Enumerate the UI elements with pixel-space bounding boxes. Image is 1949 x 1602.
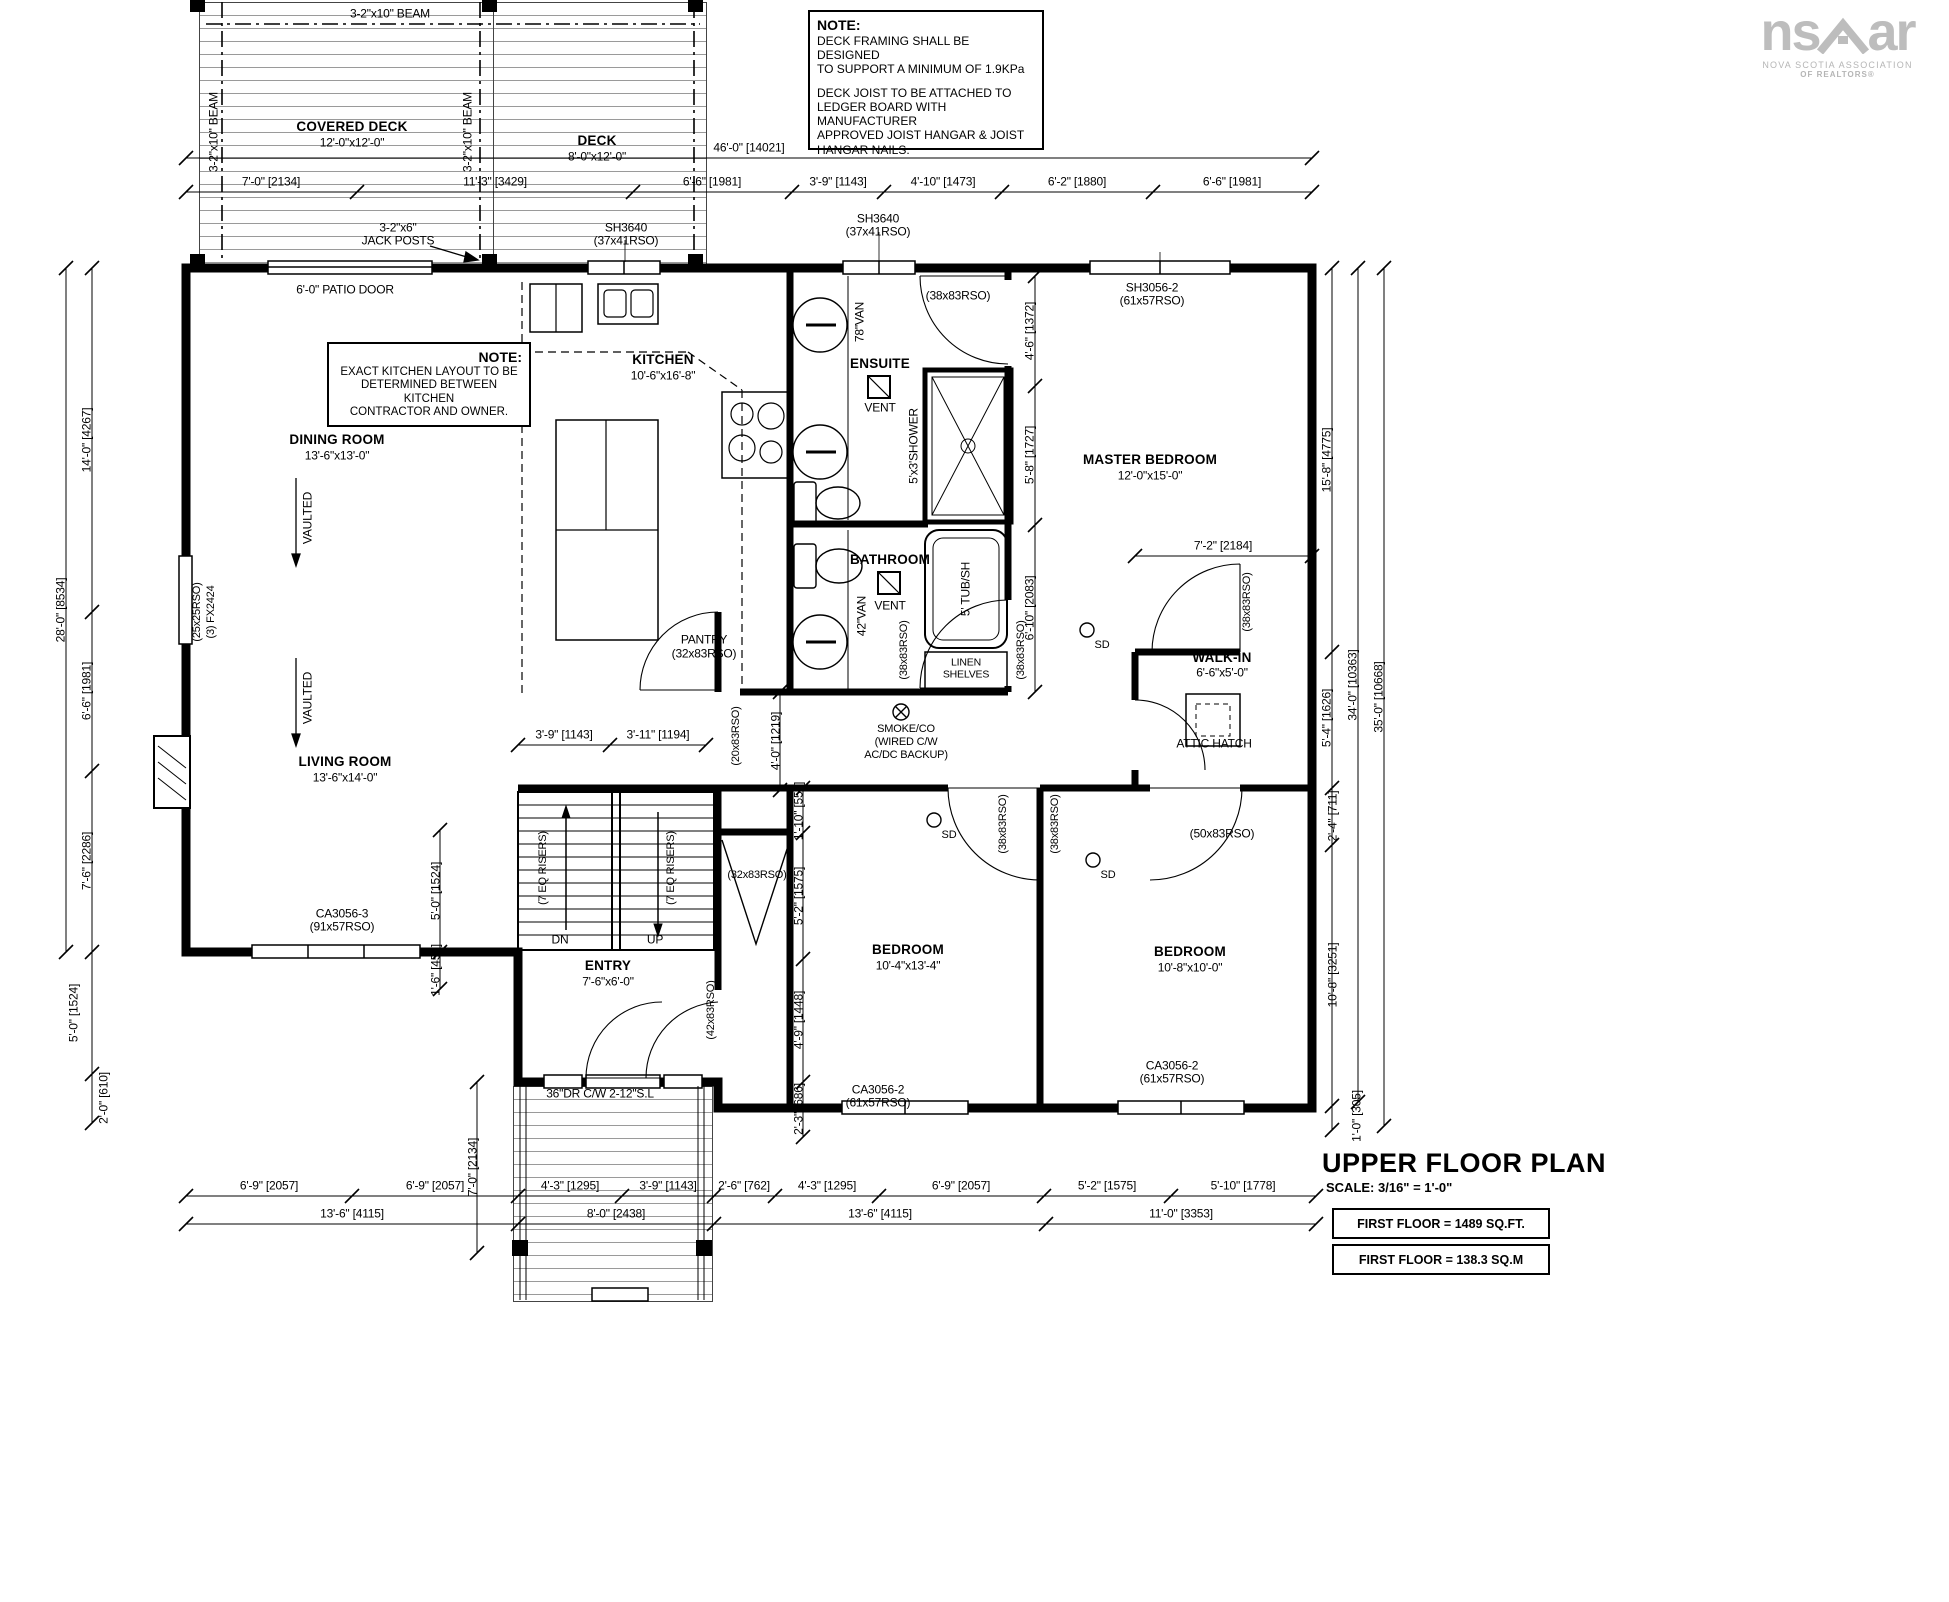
dim-bottom-total-1: 8'-0" [2438] <box>587 1208 645 1221</box>
dim-top-1: 11'-3" [3429] <box>463 176 527 189</box>
kitchen-note-line: CONTRACTOR AND OWNER. <box>336 406 522 420</box>
dim-bottom-total-0: 13'-6" [4115] <box>320 1208 384 1221</box>
smoke-co-label-1: SMOKE/CO <box>877 724 935 736</box>
entry-door-rso: (42x83RSO) <box>706 980 718 1039</box>
dim-inner-2: 6'-10" [2083] <box>1024 576 1037 641</box>
room-covered-deck-size: 12'-0"x12'-0" <box>320 137 385 150</box>
room-kitchen: KITCHEN <box>632 353 693 367</box>
bedroom1-door-rso-a: (38x83RSO) <box>998 794 1010 853</box>
shower-label: 5'x3'SHOWER <box>908 408 921 484</box>
room-bedroom1: BEDROOM <box>872 943 944 957</box>
patio-door-label: 6'-0" PATIO DOOR <box>296 284 394 297</box>
dim-left-4: 5'-0" [1524] <box>68 984 81 1042</box>
deck-note-title: NOTE: <box>817 17 1035 34</box>
kitchen-casework <box>522 282 790 698</box>
area-sqft-box: FIRST FLOOR = 1489 SQ.FT. <box>1332 1208 1550 1239</box>
dim-bottom-6: 6'-9" [2057] <box>932 1180 990 1193</box>
dim-inner-6: 4'-0" [1219] <box>770 712 783 770</box>
stairs-up-label: UP <box>647 934 663 947</box>
room-bedroom1-size: 10'-4"x13'-4" <box>876 960 941 973</box>
house-roof-icon <box>1817 14 1869 54</box>
window-tag-sh3640-2: SH3640 <box>857 213 899 226</box>
kitchen-note-line: DETERMINED BETWEEN KITCHEN <box>336 379 522 406</box>
dim-bottom-total-3: 11'-0" [3353] <box>1149 1208 1213 1221</box>
dim-inner-8: 5'-2" [1575] <box>793 867 806 925</box>
attic-hatch-label: ATTIC HATCH <box>1176 738 1251 751</box>
dim-right-2: 34'-0" [10363] <box>1347 649 1360 720</box>
ensuite-door-rso: (38x83RSO) <box>926 290 991 303</box>
dim-inner-12: 2'-3" [686] <box>793 1083 806 1135</box>
dim-inner-1: 5'-8" [1727] <box>1024 426 1037 484</box>
front-door <box>586 1002 662 1078</box>
dim-inner-10: 1'-6" [457] <box>430 944 443 996</box>
dim-right-4: 2'-4" [711] <box>1327 791 1340 842</box>
porch-rails <box>520 1086 704 1300</box>
deck-note-line: LEDGER BOARD WITH MANUFACTURER <box>817 100 1035 128</box>
room-pantry: PANTRY <box>681 634 727 647</box>
area-sqft-label: FIRST FLOOR = 1489 SQ.FT. <box>1357 1217 1525 1231</box>
room-dining: DINING ROOM <box>289 433 384 447</box>
stairs-risers-2: (7 EQ RISERS) <box>666 831 678 905</box>
room-deck: DECK <box>577 134 616 148</box>
door-swings <box>586 276 1242 1078</box>
sd-label-1: SD <box>1095 640 1110 652</box>
upper-floor-plan-sheet: 3-2"x10" BEAM 3-2"x10" BEAM 3-2"x10" BEA… <box>0 0 1949 1602</box>
tub-label: 5' TUB/SH <box>960 562 973 616</box>
kitchen-note-line: EXACT KITCHEN LAYOUT TO BE <box>336 366 522 380</box>
sd-label-3: SD <box>1101 870 1116 882</box>
window-tag-ca3056-2a-rso: (61x57RSO) <box>846 1097 911 1110</box>
dim-inner-0: 4'-6" [1372] <box>1024 302 1037 360</box>
sd-symbol-2 <box>927 813 941 827</box>
window-fx2424 <box>179 556 192 644</box>
room-walkin: WALK-IN <box>1192 651 1251 665</box>
dim-top-3: 3'-9" [1143] <box>809 176 866 189</box>
window-tag-ca3056-3: CA3056-3 <box>316 908 368 921</box>
dim-bottom-7: 5'-2" [1575] <box>1078 1180 1136 1193</box>
entry-sidelite-right <box>664 1075 702 1088</box>
beam-label-left: 3-2"x10" BEAM <box>208 92 221 172</box>
vanity-78-label: 78"VAN <box>854 302 867 342</box>
stairs-risers-1: (7 EQ RISERS) <box>538 831 550 905</box>
dim-left-1: 28'-0" [8534] <box>55 578 68 643</box>
vaulted-arrows <box>292 246 478 746</box>
dim-overall-top: 46'-0" [14021] <box>713 142 784 155</box>
dim-bottom-1: 6'-9" [2057] <box>406 1180 464 1193</box>
dim-bottom-8: 5'-10" [1778] <box>1211 1180 1276 1193</box>
room-living: LIVING ROOM <box>299 755 392 769</box>
bathroom-toilet-tank <box>794 544 816 588</box>
dim-inner-5: 3'-11" [1194] <box>627 729 690 742</box>
front-door-spec: 36"DR C/W 2-12"S.L <box>546 1088 654 1101</box>
sheet-scale: SCALE: 3/16" = 1'-0" <box>1326 1180 1452 1195</box>
dim-inner-11: 4'-9" [1448] <box>793 991 806 1049</box>
beam-label-mid: 3-2"x10" BEAM <box>462 92 475 172</box>
jack-posts-label-1: 3-2"x6" <box>379 222 416 235</box>
dim-right-3: 35'-0" [10668] <box>1373 661 1386 732</box>
room-entry: ENTRY <box>585 959 631 973</box>
room-pantry-rso: (32x83RSO) <box>672 648 737 661</box>
jack-posts-label-2: JACK POSTS <box>362 235 435 248</box>
dim-right-6: 1'-0" [305] <box>1351 1090 1364 1142</box>
window-tag-sh3640-1-rso: (37x41RSO) <box>594 235 659 248</box>
window-tag-ca3056-2a: CA3056-2 <box>852 1084 904 1097</box>
deck-note-line: DECK FRAMING SHALL BE DESIGNED <box>817 34 1035 62</box>
porch-step-base <box>592 1288 648 1301</box>
dim-inner-4: 3'-9" [1143] <box>535 729 592 742</box>
bedroom1-door <box>948 788 1040 880</box>
linen-label-1: LINEN <box>951 657 981 668</box>
window-tag-sh3056-rso: (61x57RSO) <box>1120 295 1185 308</box>
room-bedroom2-size: 10'-8"x10'-0" <box>1158 962 1223 975</box>
smoke-co-label-3: AC/DC BACKUP) <box>864 750 948 762</box>
dim-top-5: 6'-2" [1880] <box>1048 176 1106 189</box>
dim-bottom-0: 6'-9" [2057] <box>240 1180 298 1193</box>
deck-note-line: HANGAR NAILS. <box>817 143 1035 157</box>
dim-left-2: 6'-6" [1981] <box>81 662 94 720</box>
interior-walls <box>518 272 1312 1108</box>
room-master: MASTER BEDROOM <box>1083 453 1217 467</box>
sheet-title: UPPER FLOOR PLAN <box>1322 1148 1606 1179</box>
sd-symbol-1 <box>1080 623 1094 637</box>
deck-note-line: TO SUPPORT A MINIMUM OF 1.9KPa <box>817 62 1035 76</box>
room-walkin-size: 6'-6"x5'-0" <box>1196 667 1248 680</box>
closet-door-rso: (32x83RSO) <box>727 870 786 882</box>
nsar-logo-ns: ns <box>1760 10 1819 56</box>
dim-inner-3: 7'-2" [2184] <box>1194 540 1252 553</box>
deck-framing-note: NOTE: DECK FRAMING SHALL BE DESIGNED TO … <box>808 10 1044 150</box>
beam-label-top: 3-2"x10" BEAM <box>350 8 430 21</box>
window-tag-sh3056: SH3056-2 <box>1126 282 1178 295</box>
room-covered-deck: COVERED DECK <box>296 120 407 134</box>
room-deck-size: 8'-0"x12'-0" <box>568 151 626 164</box>
bedroom2-door-rso: (50x83RSO) <box>1190 828 1255 841</box>
bathroom-vent-label: VENT <box>874 600 905 613</box>
dim-inner-7: 1'-10" [559] <box>793 782 806 840</box>
dim-top-6: 6'-6" [1981] <box>1203 176 1261 189</box>
smoke-co-label-2: (WIRED C/W <box>875 737 938 749</box>
room-entry-size: 7'-6"x6'-0" <box>582 976 634 989</box>
area-sqm-label: FIRST FLOOR = 138.3 SQ.M <box>1359 1253 1523 1267</box>
dim-right-1: 5'-4" [1626] <box>1321 689 1334 747</box>
dim-inner-9: 5'-0" [1524] <box>430 862 443 920</box>
nsar-logo-brand: ns ar <box>1735 10 1940 56</box>
walkin-door <box>1135 700 1205 770</box>
room-master-size: 12'-0"x15'-0" <box>1118 470 1183 483</box>
window-tag-ca3056-2b: CA3056-2 <box>1146 1060 1198 1073</box>
deck-note-line: APPROVED JOIST HANGAR & JOIST <box>817 128 1035 142</box>
window-tag-sh3640-1: SH3640 <box>605 222 647 235</box>
room-living-size: 13'-6"x14'-0" <box>313 772 378 785</box>
window-tag-sh3640-2-rso: (37x41RSO) <box>846 226 911 239</box>
window-tag-ca3056-3-rso: (91x57RSO) <box>310 921 375 934</box>
nsar-tagline-2: OF REALTORS® <box>1735 70 1940 79</box>
ensuite-vent-label: VENT <box>864 402 895 415</box>
dim-inner-13: 7'-0" [2134] <box>467 1138 480 1196</box>
room-kitchen-size: 10'-6"x16'-8" <box>631 370 696 383</box>
floor-plan-drawing <box>0 0 1949 1602</box>
linen-label-2: SHELVES <box>943 669 989 680</box>
dim-bottom-3: 3'-9" [1143] <box>639 1180 696 1193</box>
nsar-logo-ar: ar <box>1867 10 1914 56</box>
vaulted-label-2: VAULTED <box>302 672 315 724</box>
room-bathroom: BATHROOM <box>850 553 930 567</box>
window-tag-fx2424: (3) FX2424 <box>206 585 218 638</box>
room-bedroom2: BEDROOM <box>1154 945 1226 959</box>
sd-symbol-3 <box>1086 853 1100 867</box>
window-ca3056-3 <box>252 945 420 958</box>
dim-bottom-4: 2'-6" [762] <box>718 1180 770 1193</box>
nsar-logo: ns ar NOVA SCOTIA ASSOCIATION OF REALTOR… <box>1735 10 1940 79</box>
sd-label-2: SD <box>942 830 957 842</box>
dim-left-0: 14'-0" [4267] <box>81 408 94 473</box>
kitchen-note: NOTE: EXACT KITCHEN LAYOUT TO BE DETERMI… <box>327 342 531 427</box>
dim-left-3: 7'-6" [2286] <box>81 832 94 890</box>
dim-top-4: 4'-10" [1473] <box>911 176 976 189</box>
nsar-tagline-1: NOVA SCOTIA ASSOCIATION <box>1735 60 1940 70</box>
pantry-wall-rso: (20x83RSO) <box>731 706 743 765</box>
stairs-dn-label: DN <box>552 934 569 947</box>
deck-note-line: DECK JOIST TO BE ATTACHED TO <box>817 86 1035 100</box>
ensuite-toilet-bowl <box>816 487 860 519</box>
vanity-42-label: 42"VAN <box>856 596 869 636</box>
kitchen-note-title: NOTE: <box>336 349 522 366</box>
master-door <box>1152 564 1240 652</box>
dim-left-5: 2'-0" [610] <box>98 1072 111 1124</box>
closet-bifold-doors <box>722 840 790 944</box>
dim-bottom-total-2: 13'-6" [4115] <box>848 1208 912 1221</box>
dim-bottom-2: 4'-3" [1295] <box>541 1180 599 1193</box>
bath-door-rso: (38x83RSO) <box>899 620 911 679</box>
room-dining-size: 13'-6"x13'-0" <box>305 450 370 463</box>
area-sqm-box: FIRST FLOOR = 138.3 SQ.M <box>1332 1244 1550 1275</box>
dimension-ticks <box>59 151 1391 1260</box>
window-tag-ca3056-2b-rso: (61x57RSO) <box>1140 1073 1205 1086</box>
vaulted-label-1: VAULTED <box>302 492 315 544</box>
dim-right-5: 10'-8" [3251] <box>1327 943 1340 1008</box>
room-ensuite: ENSUITE <box>850 357 910 371</box>
jack-posts-leader <box>430 246 470 258</box>
dim-top-2: 6'-6" [1981] <box>683 176 741 189</box>
ensuite-toilet-tank <box>794 482 816 524</box>
dim-top-0: 7'-0" [2134] <box>242 176 300 189</box>
window-tag-fx2424-rso: (25x25RSO) <box>192 582 204 641</box>
dim-bottom-5: 4'-3" [1295] <box>798 1180 856 1193</box>
stove <box>722 392 790 478</box>
bedroom1-door-rso-b: (38x83RSO) <box>1050 794 1062 853</box>
master-door-rso: (38x83RSO) <box>1242 572 1254 631</box>
dim-right-0: 15'-8" [4775] <box>1321 428 1334 493</box>
ensuite-fixtures <box>793 276 1011 524</box>
